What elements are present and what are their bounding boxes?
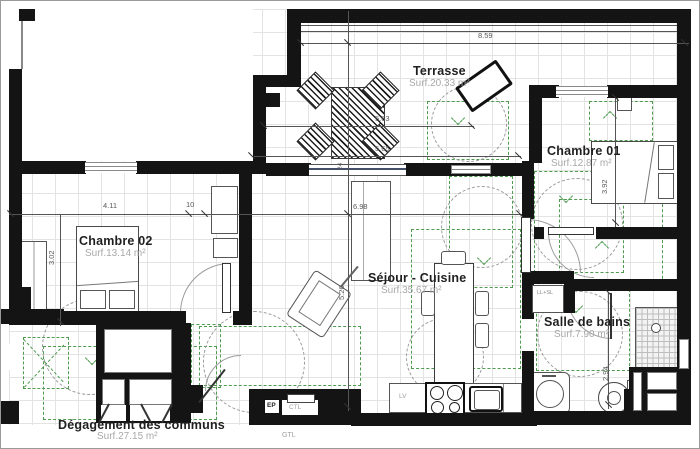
wall-chambre02-top-b	[136, 161, 254, 174]
kitchen-island-line	[363, 182, 364, 280]
armchair-seat	[298, 280, 341, 326]
room-label-sdb: Salle de bains	[544, 316, 630, 329]
bay-window-glass	[309, 168, 406, 170]
door-leaf-chambre02	[222, 263, 231, 313]
pillow	[109, 290, 135, 309]
wall-chambre01-bottom-pier	[534, 227, 544, 239]
door-leaf-chambre01	[548, 227, 594, 235]
wall-terrace-left-upper	[287, 9, 301, 85]
shaft-inset	[129, 379, 172, 405]
wall-sejour-top-a	[266, 163, 311, 176]
room-label-chambre01: Chambre 01	[547, 145, 621, 158]
dining-chair	[475, 291, 489, 316]
shower-tray	[635, 307, 681, 371]
toilet-inner-icon	[607, 391, 621, 405]
kitchen-sink-basin	[474, 390, 500, 410]
nightstand	[617, 97, 632, 111]
radiator-sejour	[451, 165, 491, 174]
dim-line-horizontal-main	[9, 214, 522, 215]
door-gap-left	[9, 344, 22, 370]
dishwasher-label: LV	[399, 394, 406, 401]
radiator-right-wall	[679, 339, 689, 369]
wall-degagement-pier	[18, 287, 31, 311]
ctl-label: CTL	[289, 405, 301, 412]
dim-label-wall: 10	[186, 201, 194, 209]
dim-line-terrasse-upper	[266, 126, 474, 127]
dim-label-sejour-height: 5.26	[338, 285, 346, 300]
room-area-chambre01: Surf.12.87 m²	[551, 159, 612, 169]
room-area-sdb: Surf.7.90 m²	[554, 330, 609, 340]
wall-sdb-stub	[564, 279, 575, 313]
desk-chambre02	[211, 186, 238, 234]
wall-degagement-corner	[1, 401, 19, 424]
room-label-chambre02: Chambre 02	[79, 235, 153, 248]
dim-label-terrasse-lower: 5.65	[375, 145, 390, 153]
pillow	[80, 290, 106, 309]
room-area-chambre02: Surf.13.14 m²	[85, 249, 146, 259]
dim-line-vertical-main	[348, 11, 349, 411]
wall-terrace-pillar	[266, 93, 280, 107]
wall-chambre02-divider	[239, 161, 252, 325]
burner-icon	[449, 402, 460, 413]
dining-chair	[441, 251, 466, 265]
duct-inset	[633, 372, 642, 411]
wall-chambre02-bottom-pier	[233, 311, 252, 325]
burner-icon	[430, 386, 444, 400]
washbasin-tap	[542, 375, 556, 377]
outside-area-right	[691, 1, 700, 449]
door-leaf-sejour	[521, 217, 531, 273]
property-line	[21, 21, 23, 69]
shaft-inset	[102, 379, 125, 405]
dining-chair	[475, 323, 489, 348]
duct-inset	[647, 372, 677, 390]
wall-bottom-kitchen	[351, 413, 537, 426]
washbasin-bowl-icon	[536, 380, 564, 408]
dim-line-chambre01-height	[615, 98, 616, 227]
dim-line-terrasse-lower	[254, 156, 521, 157]
outside-area-top-left	[1, 1, 253, 161]
shower-drain-icon	[651, 323, 661, 333]
wall-sejour-right-upper	[522, 161, 534, 219]
gtl-label: GTL	[282, 432, 296, 439]
window-chambre01	[556, 86, 608, 97]
wall-degagement-top	[1, 309, 64, 324]
dim-label-sdb-height: 2.94	[602, 366, 610, 381]
room-area-terrasse: Surf.20.33 m²	[409, 79, 470, 89]
wall-chambre01-bottom	[596, 227, 677, 239]
wall-chambre02-top-a	[9, 161, 86, 174]
dim-label-sejour-width: 6.98	[353, 203, 368, 211]
wall-top-left-stub	[19, 9, 35, 21]
dim-label-bay: 24	[338, 163, 345, 170]
dim-line-sdb-height	[608, 293, 609, 409]
dim-label-chambre02-width: 4.11	[103, 202, 117, 210]
outside-area-left	[1, 161, 9, 311]
pillow	[658, 173, 674, 199]
bay-window	[309, 164, 406, 176]
shaft-inset	[104, 329, 172, 373]
dim-label-total-width: 8.59	[478, 32, 493, 40]
burner-icon	[447, 385, 463, 401]
room-label-terrasse: Terrasse	[413, 65, 466, 78]
ep-label: EP	[267, 403, 276, 410]
outside-area-top	[253, 1, 700, 9]
floor-plan: LV LL+SL	[0, 0, 700, 449]
shelf-chambre02	[213, 238, 238, 258]
room-area-degagement: Surf.27.15 m²	[97, 432, 158, 442]
dim-line-chambre02-height	[60, 214, 61, 326]
dim-label-terrasse-upper: 5.63	[375, 115, 390, 123]
wall-sdb-top	[564, 279, 691, 291]
room-label-degagement: Dégagement des communs	[58, 419, 225, 432]
dim-label-chambre02-height: 3.02	[48, 250, 56, 265]
room-label-sejour: Séjour - Cuisine	[368, 272, 466, 285]
washer-dryer-label: LL+SL	[537, 291, 553, 297]
room-area-sejour: Surf.35.67 m²	[381, 286, 442, 296]
window-chambre02	[85, 162, 137, 173]
duct-inset	[647, 393, 677, 411]
dim-line-total-width	[301, 43, 689, 44]
dim-label-chambre01-height: 3.92	[601, 179, 609, 194]
kitchen-counter-divider	[503, 384, 504, 412]
pillow	[658, 145, 674, 170]
wall-chambre01-left	[529, 85, 542, 163]
wall-chambre01-top-b	[607, 85, 677, 98]
ctl-box	[287, 394, 315, 403]
